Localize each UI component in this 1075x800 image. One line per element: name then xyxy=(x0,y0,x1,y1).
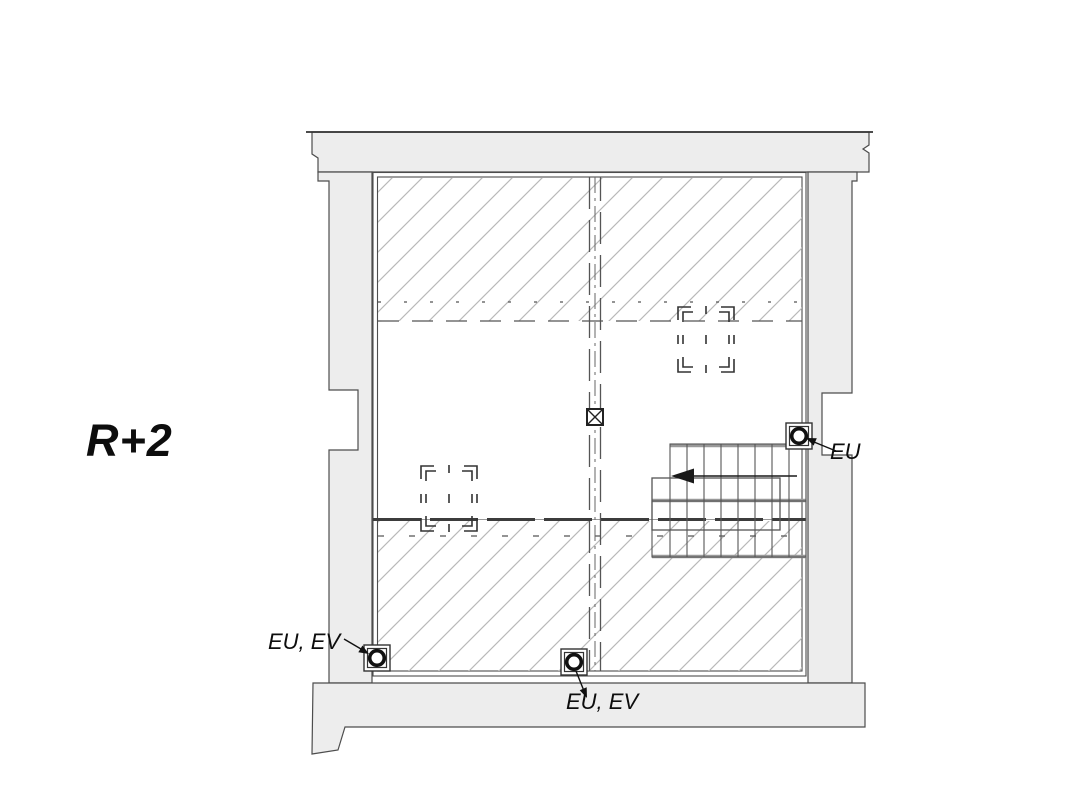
drain-eu-ev-bottom-center xyxy=(561,649,587,675)
floor-plan-drawing: R+2 EU EU, EV EU, EV xyxy=(0,0,1075,800)
stair-direction-arrow xyxy=(671,469,797,484)
wall-left xyxy=(318,172,372,683)
stair-treads-upper xyxy=(687,444,789,501)
wall-right xyxy=(808,172,857,683)
label-eu-right: EU xyxy=(830,439,861,464)
drain-eu-right xyxy=(786,423,812,449)
drain-eu-ev-bottom-left xyxy=(364,645,390,671)
floor-plan-page: R+2 EU EU, EV EU, EV xyxy=(0,0,1075,800)
wall-top xyxy=(312,132,869,172)
label-eu-ev-bottom-center: EU, EV xyxy=(566,689,640,714)
floor-level-label: R+2 xyxy=(86,415,173,466)
duct-symbol xyxy=(587,409,603,425)
label-eu-ev-bottom-left: EU, EV xyxy=(268,629,342,654)
